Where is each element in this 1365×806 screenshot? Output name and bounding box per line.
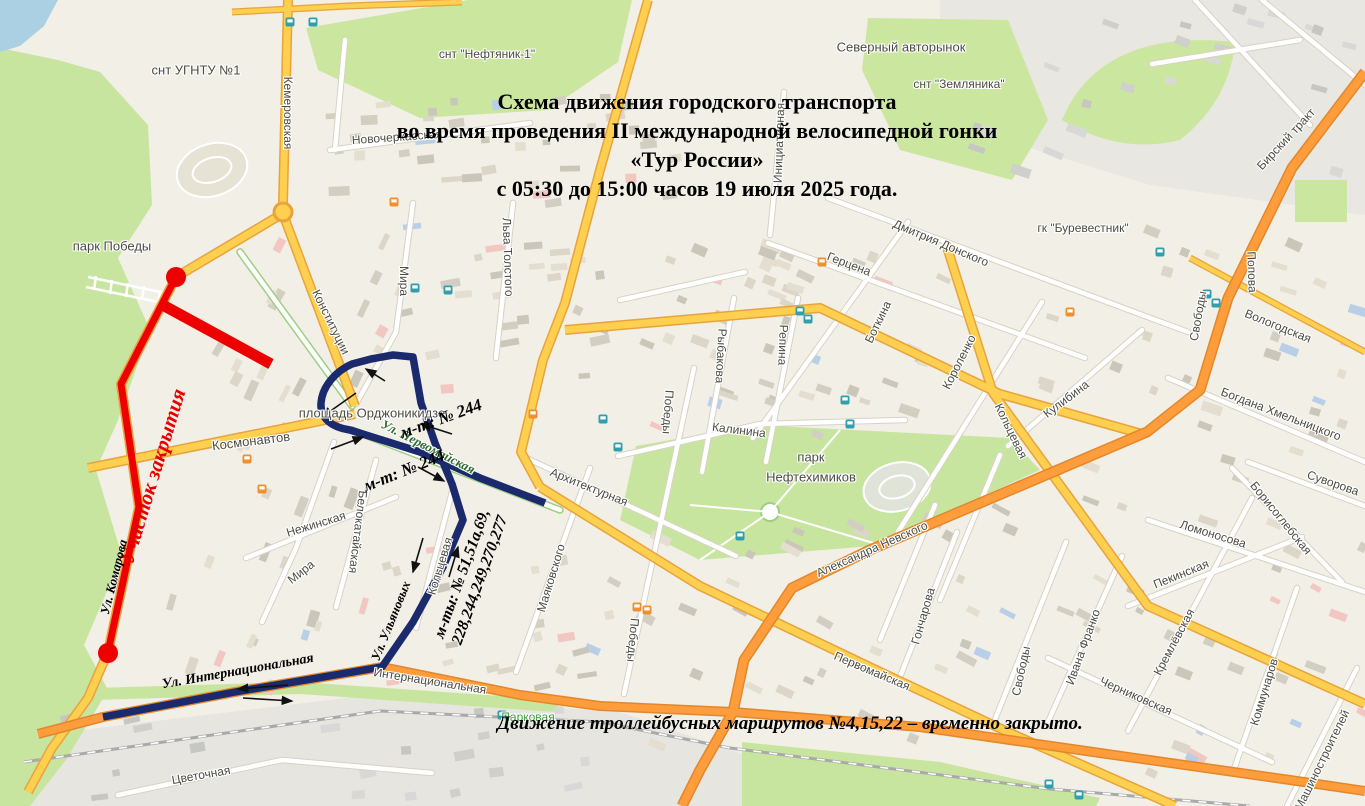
- tram-stop-icon: [258, 485, 267, 494]
- bus-stop-icon: [599, 415, 608, 424]
- roundabout: [274, 203, 292, 221]
- title-line-2: во время проведения II международной вел…: [397, 116, 998, 145]
- title-line-3: «Тур России»: [397, 145, 998, 174]
- tram-stop-icon: [1066, 308, 1075, 317]
- bus-stop-icon: [1075, 791, 1084, 800]
- bus-stop-icon: [1212, 299, 1221, 308]
- tram-stop-icon: [633, 603, 642, 612]
- scheme-title: Схема движения городского транспорта во …: [397, 87, 998, 203]
- bus-stop-icon: [1045, 780, 1054, 789]
- bus-stop-icon: [796, 307, 805, 316]
- transport-scheme-poster: снт УГНТУ №1КемеровскаяНовочеркасскаяпар…: [0, 0, 1365, 806]
- bus-stop-icon: [846, 420, 855, 429]
- trolleybus-note: Движение троллейбусных маршрутов №4,15,2…: [497, 713, 1082, 735]
- bus-stop-icon: [444, 286, 453, 295]
- closed-route-endpoint-north: [166, 267, 186, 287]
- bus-stop-icon: [411, 284, 420, 293]
- bus-stop-icon: [1156, 248, 1165, 257]
- bus-stop-icon: [1203, 290, 1212, 299]
- bus-stop-icon: [309, 18, 318, 27]
- bus-stop-icon: [286, 18, 295, 27]
- title-line-1: Схема движения городского транспорта: [397, 87, 998, 116]
- tram-stop-icon: [643, 606, 652, 615]
- closed-route-endpoint-south: [98, 643, 118, 663]
- tram-stop-icon: [243, 455, 252, 464]
- bus-stop-icon: [614, 443, 623, 452]
- title-line-4: с 05:30 до 15:00 часов 19 июля 2025 года…: [397, 174, 998, 203]
- tram-stop-icon: [818, 258, 827, 267]
- tram-stop-icon: [529, 410, 538, 419]
- bus-stop-icon: [841, 396, 850, 405]
- bus-stop-icon: [736, 532, 745, 541]
- bus-stop-icon: [804, 315, 813, 324]
